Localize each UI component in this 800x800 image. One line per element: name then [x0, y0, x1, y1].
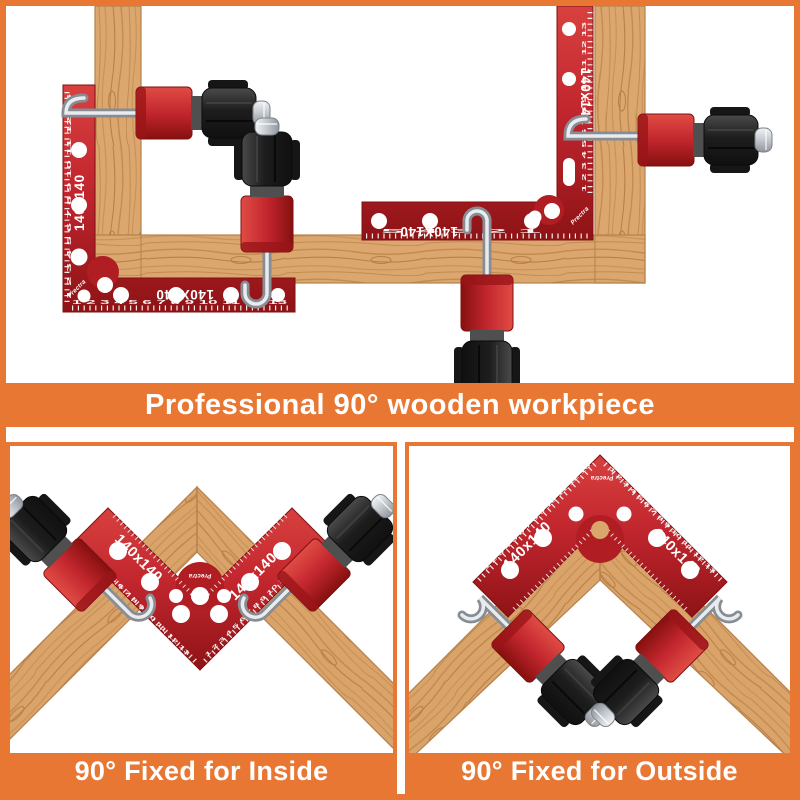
- caption-top: Professional 90° wooden workpiece: [6, 383, 794, 427]
- outside-panel: 1 2 3 4 5 6 7 8 9 10 11 12 13 1 2 3 4 5 …: [405, 442, 794, 794]
- outside-scene-panel: 1 2 3 4 5 6 7 8 9 10 11 12 13 1 2 3 4 5 …: [409, 446, 790, 753]
- outside-scene-image: 1 2 3 4 5 6 7 8 9 10 11 12 13 1 2 3 4 5 …: [409, 446, 790, 753]
- corner-square-middle: 5 4 3 2 1 1 2 3 4 5 6 7 8 9 10 11 12 13 …: [362, 6, 593, 240]
- bottom-row: 1 2 3 4 5 6 7 8 9 10 11 12 13 1 2 3 4 5 …: [6, 442, 794, 794]
- brand-label: Prectra: [188, 572, 211, 579]
- inside-scene-image: 1 2 3 4 5 6 7 8 9 10 11 12 13 1 2 3 4 5 …: [10, 446, 393, 753]
- inside-scene-panel: 1 2 3 4 5 6 7 8 9 10 11 12 13 1 2 3 4 5 …: [10, 446, 393, 753]
- caption-bottom-right: 90° Fixed for Outside: [409, 753, 790, 790]
- size-label: 140X140: [156, 287, 214, 302]
- clamp-assembly: [454, 275, 520, 383]
- panel-gap: [397, 442, 405, 794]
- clamp-assembly: [234, 118, 300, 252]
- inside-panel: 1 2 3 4 5 6 7 8 9 10 11 12 13 1 2 3 4 5 …: [6, 442, 397, 794]
- size-label: 140X140: [400, 224, 458, 239]
- top-scene-panel: 1 2 3 4 5 6 7 8 9 10 11 12 13 1 2 3 4 5 …: [6, 6, 794, 383]
- caption-bottom-left-text: 90° Fixed for Inside: [75, 756, 329, 787]
- size-label: 140x140: [72, 174, 87, 231]
- brand-label: Prectra: [590, 474, 613, 481]
- caption-top-text: Professional 90° wooden workpiece: [145, 389, 655, 422]
- caption-bottom-left: 90° Fixed for Inside: [10, 753, 393, 790]
- wood-board-bottom: [95, 235, 645, 283]
- clamp-assembly: [638, 107, 772, 173]
- divider-gap: [6, 427, 794, 442]
- caption-bottom-right-text: 90° Fixed for Outside: [461, 756, 738, 787]
- top-scene-image: 1 2 3 4 5 6 7 8 9 10 11 12 13 1 2 3 4 5 …: [6, 6, 794, 383]
- corner-square-outside: 1 2 3 4 5 6 7 8 9 10 11 12 13 1 2 3 4 5 …: [473, 455, 727, 617]
- product-image-frame: 1 2 3 4 5 6 7 8 9 10 11 12 13 1 2 3 4 5 …: [0, 0, 800, 800]
